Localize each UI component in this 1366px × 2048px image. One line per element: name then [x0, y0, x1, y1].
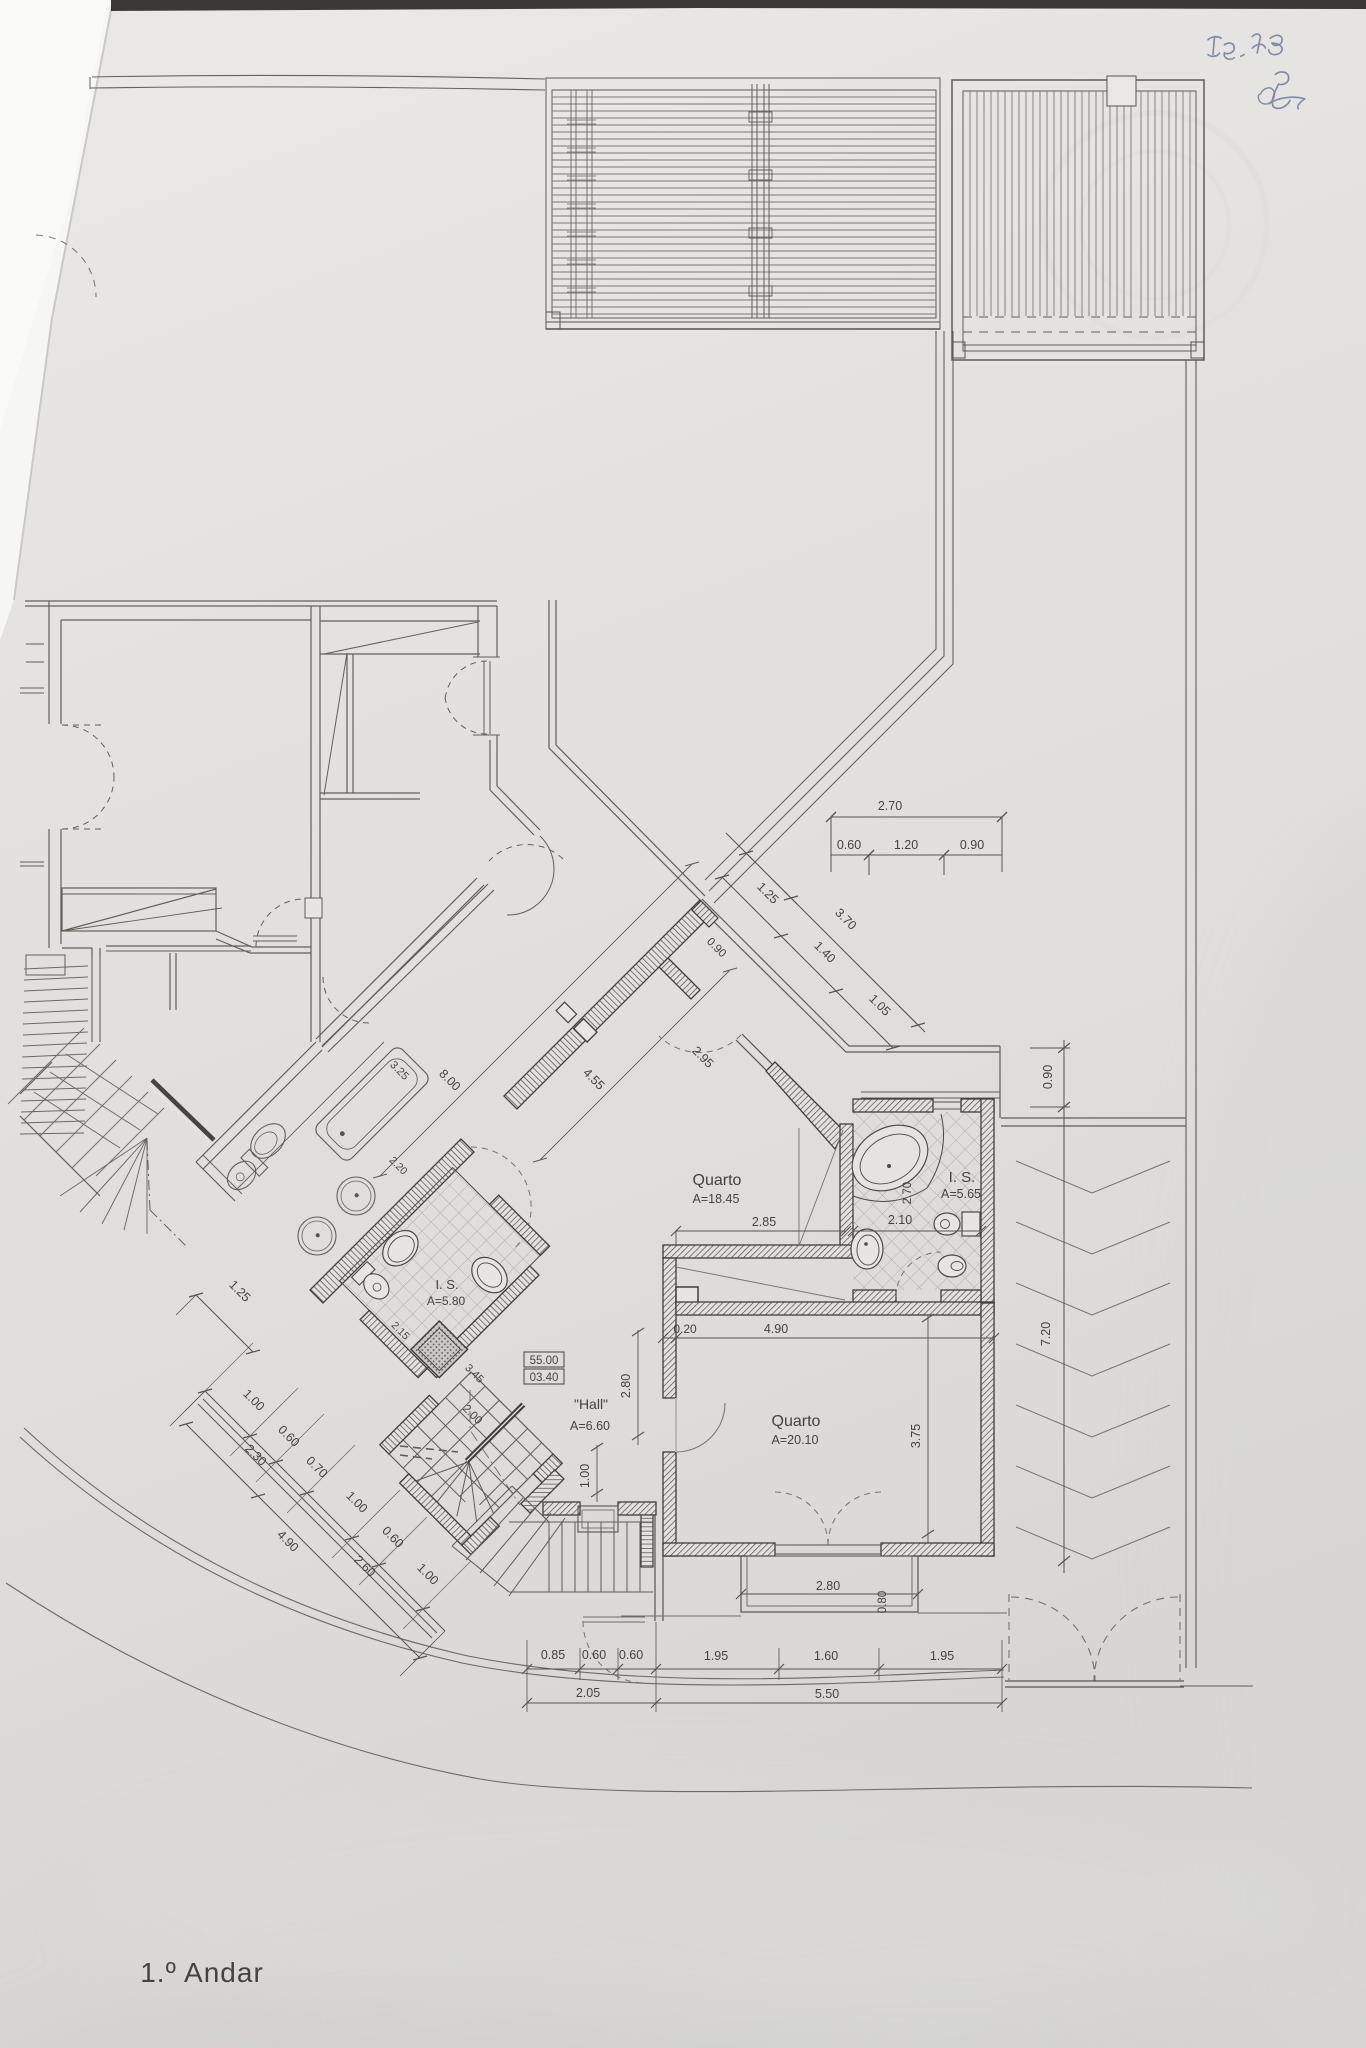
svg-text:2.70: 2.70 [878, 799, 902, 813]
svg-text:3.75: 3.75 [909, 1424, 923, 1448]
svg-text:0.80: 0.80 [877, 1591, 889, 1613]
svg-text:0.85: 0.85 [541, 1648, 565, 1662]
svg-text:55.00: 55.00 [530, 1355, 559, 1367]
svg-text:03.40: 03.40 [530, 1372, 559, 1384]
svg-text:2.80: 2.80 [816, 1579, 840, 1593]
svg-text:2.85: 2.85 [752, 1215, 776, 1229]
svg-text:1.20: 1.20 [894, 838, 918, 852]
svg-text:0.60: 0.60 [619, 1648, 643, 1662]
svg-text:0.60: 0.60 [837, 838, 861, 852]
svg-text:7.20: 7.20 [1039, 1322, 1053, 1346]
svg-text:0.20: 0.20 [673, 1322, 697, 1336]
svg-text:I. S.: I. S. [435, 1277, 458, 1292]
svg-text:A=5.80: A=5.80 [427, 1294, 466, 1308]
svg-text:2.05: 2.05 [576, 1686, 600, 1700]
svg-text:A=5.65: A=5.65 [941, 1187, 981, 1201]
svg-text:0.90: 0.90 [960, 838, 984, 852]
svg-text:1.60: 1.60 [814, 1649, 838, 1663]
svg-text:Quarto: Quarto [772, 1413, 821, 1430]
svg-text:A=18.45: A=18.45 [693, 1192, 740, 1206]
svg-text:A=20.10: A=20.10 [772, 1433, 819, 1447]
svg-text:0.60: 0.60 [582, 1648, 606, 1662]
svg-text:Quarto: Quarto [693, 1172, 742, 1189]
svg-text:1.95: 1.95 [930, 1649, 954, 1663]
svg-text:1.95: 1.95 [704, 1649, 728, 1663]
svg-text:2.80: 2.80 [619, 1374, 633, 1398]
svg-text:2.70: 2.70 [902, 1182, 914, 1204]
svg-text:4.90: 4.90 [764, 1322, 788, 1336]
svg-text:"Hall": "Hall" [574, 1396, 608, 1412]
svg-text:5.50: 5.50 [815, 1687, 839, 1701]
svg-text:I. S.: I. S. [949, 1169, 976, 1186]
svg-text:2.10: 2.10 [888, 1213, 912, 1227]
svg-text:A=6.60: A=6.60 [570, 1419, 610, 1433]
svg-text:1.00: 1.00 [578, 1464, 592, 1488]
svg-text:0.90: 0.90 [1041, 1065, 1055, 1089]
svg-text:1.º Andar: 1.º Andar [140, 1957, 264, 1988]
